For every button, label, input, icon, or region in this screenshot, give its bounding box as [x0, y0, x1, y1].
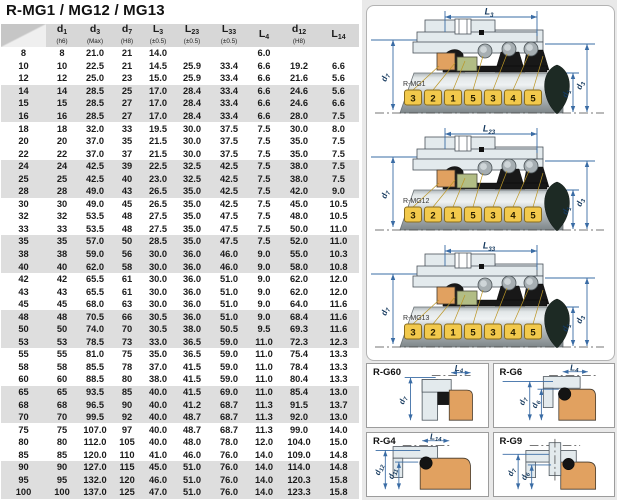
svg-text:d7: d7: [379, 71, 392, 83]
table-cell: 68.7: [210, 411, 248, 424]
table-cell: 46.0: [210, 248, 248, 261]
table-cell: 112.0: [78, 436, 112, 449]
table-cell: 7.5: [318, 160, 359, 173]
svg-text:4: 4: [510, 94, 516, 105]
table-cell: 11.0: [248, 336, 280, 349]
table-cell: 33.4: [210, 97, 248, 110]
table-cell: 23.0: [142, 172, 174, 185]
table-cell: 42.5: [210, 160, 248, 173]
table-cell: 78: [112, 361, 142, 374]
table-cell: 14.0: [248, 461, 280, 474]
table-cell: 42.5: [78, 172, 112, 185]
svg-text:3: 3: [410, 94, 415, 105]
svg-text:d7: d7: [517, 395, 530, 407]
svg-text:5: 5: [470, 211, 476, 222]
table-cell: 33.4: [210, 72, 248, 85]
part-number-tag: 5: [525, 90, 542, 105]
table-cell: 11.0: [248, 386, 280, 399]
row-label: 8: [1, 47, 46, 60]
row-label: 22: [1, 147, 46, 160]
table-cell: 78.0: [210, 436, 248, 449]
table-cell: 48.0: [280, 210, 318, 223]
table-cell: 40: [112, 172, 142, 185]
svg-text:d7: d7: [379, 188, 392, 200]
table-cell: 14.0: [318, 423, 359, 436]
table-cell: 18: [46, 122, 78, 135]
table-cell: 62.0: [280, 273, 318, 286]
table-cell: 26.5: [142, 198, 174, 211]
table-cell: 52.0: [280, 235, 318, 248]
table-row: 101022.52114.525.933.46.619.26.6: [1, 60, 359, 73]
table-cell: 6.6: [318, 60, 359, 73]
table-cell: 14.8: [318, 461, 359, 474]
column-header-d12: d12(H8): [280, 24, 318, 47]
table-row: 303049.04526.535.042.57.545.010.5: [1, 198, 359, 211]
table-cell: 47.5: [210, 210, 248, 223]
table-row: 606088.58038.041.559.011.080.413.3: [1, 373, 359, 386]
table-row: 404062.05830.036.046.09.058.010.8: [1, 260, 359, 273]
table-body: 8821.02114.06.0101022.52114.525.933.46.6…: [1, 47, 359, 499]
table-cell: 9.0: [248, 285, 280, 298]
table-cell: 72.3: [280, 336, 318, 349]
o-ring: [562, 458, 574, 470]
table-cell: 36.0: [174, 310, 210, 323]
table-row: 151528.52717.028.433.46.624.66.6: [1, 97, 359, 110]
table-cell: 10.3: [318, 248, 359, 261]
row-label: 45: [1, 298, 46, 311]
table-cell: 27.5: [142, 223, 174, 236]
svg-text:1: 1: [450, 94, 456, 105]
table-cell: 22.5: [78, 60, 112, 73]
table-cell: 50: [112, 235, 142, 248]
table-row: 8080112.010540.048.078.012.0104.015.0: [1, 436, 359, 449]
seat-box-rg4: R-G4 L14 d12 d11: [366, 432, 489, 497]
table-row: 9090127.011545.051.076.014.0114.014.8: [1, 461, 359, 474]
d3-dimension: d3: [574, 278, 589, 346]
table-cell: 32.0: [78, 122, 112, 135]
table-cell: 95: [46, 474, 78, 487]
table-cell: 17.0: [142, 110, 174, 123]
table-cell: 14.0: [248, 474, 280, 487]
table-cell: 58.0: [280, 260, 318, 273]
table-cell: 6.6: [248, 72, 280, 85]
drive-pin: [479, 147, 484, 152]
table-cell: 43: [46, 285, 78, 298]
seal-face-ring: [457, 174, 477, 188]
table-cell: 30.5: [142, 323, 174, 336]
seat-ring: [437, 53, 455, 70]
table-cell: 40.0: [142, 436, 174, 449]
table-cell: 78.5: [78, 336, 112, 349]
part-number-tag: 4: [505, 207, 522, 222]
table-cell: 68: [46, 398, 78, 411]
table-row: 555581.07535.036.559.011.075.413.3: [1, 348, 359, 361]
table-row: 686896.59040.041.268.711.391.513.7: [1, 398, 359, 411]
table-cell: 137.0: [78, 486, 112, 499]
table-row: 222237.03721.530.037.57.535.07.5: [1, 147, 359, 160]
svg-text:L4: L4: [570, 364, 579, 374]
table-cell: 28.0: [280, 110, 318, 123]
drive-pin: [479, 264, 484, 269]
table-cell: 41.0: [142, 449, 174, 462]
drive-pin: [479, 30, 484, 35]
table-row: 353557.05028.535.047.57.552.011.0: [1, 235, 359, 248]
seat-grid: R-G60 L4 d7 R-G6: [366, 363, 615, 497]
table-cell: 11.3: [248, 423, 280, 436]
row-label: 100: [1, 486, 46, 499]
table-cell: 38: [46, 248, 78, 261]
table-cell: 36.0: [174, 248, 210, 261]
table-cell: 47.5: [210, 235, 248, 248]
table-cell: 10.5: [318, 198, 359, 211]
table-cell: 88.5: [78, 373, 112, 386]
springs: [478, 42, 538, 58]
table-cell: 35.0: [174, 210, 210, 223]
table-cell: 132.0: [78, 474, 112, 487]
table-cell: 28.4: [174, 85, 210, 98]
table-cell: 30.0: [174, 147, 210, 160]
table-cell: 6.0: [248, 47, 280, 60]
table-cell: 14.8: [318, 449, 359, 462]
table-cell: 35: [46, 235, 78, 248]
part-number-tags: 3 2 1 5 3 4 5: [405, 207, 542, 222]
svg-text:5: 5: [470, 328, 476, 339]
column-header-L23: L23(±0.5): [174, 24, 210, 47]
table-cell: 7.5: [248, 210, 280, 223]
seal-cross-section-diagram: 3 2 1 5 3 4 5 R-MG12 L23: [367, 123, 612, 240]
svg-text:3: 3: [490, 328, 495, 339]
table-cell: 48: [112, 210, 142, 223]
table-cell: 42.5: [210, 185, 248, 198]
table-cell: 36.0: [174, 298, 210, 311]
table-cell: 35.0: [280, 147, 318, 160]
row-label: 33: [1, 223, 46, 236]
seal-diagram-image: 3 2 1 5 3 4 5 R-MG13 L33: [367, 240, 612, 357]
table-cell: 43: [112, 185, 142, 198]
table-cell: 21.5: [142, 135, 174, 148]
table-cell: 64.0: [280, 298, 318, 311]
table-cell: 10.5: [318, 210, 359, 223]
table-cell: 48.7: [174, 411, 210, 424]
table-cell: 93.5: [78, 386, 112, 399]
table-row: 202037.03521.530.037.57.535.07.5: [1, 135, 359, 148]
table-cell: 7.5: [248, 160, 280, 173]
table-cell: 30.0: [142, 260, 174, 273]
table-cell: 7.5: [318, 147, 359, 160]
table-cell: 55: [46, 348, 78, 361]
table-cell: 58: [46, 361, 78, 374]
table-cell: 22.5: [142, 160, 174, 173]
table-cell: 11.0: [248, 348, 280, 361]
table-cell: 5.6: [318, 85, 359, 98]
table-cell: 39: [112, 160, 142, 173]
row-label: 68: [1, 398, 46, 411]
table-cell: 59.0: [78, 248, 112, 261]
table-cell: 30.0: [280, 122, 318, 135]
d3-dimension: d3: [574, 161, 589, 229]
table-cell: 13.3: [318, 361, 359, 374]
seal-face-ring: [457, 57, 477, 71]
table-row: 656593.58540.041.569.011.085.413.0: [1, 386, 359, 399]
part-number-tag: 3: [485, 90, 502, 105]
table-cell: 20: [46, 135, 78, 148]
table-cell: 35.0: [174, 223, 210, 236]
row-label: 53: [1, 336, 46, 349]
seal-diagram-image: 3 2 1 5 3 4 5 R-MG1 L3: [367, 6, 612, 123]
table-cell: 7.5: [248, 122, 280, 135]
table-cell: 48.7: [174, 423, 210, 436]
svg-text:4: 4: [510, 211, 516, 222]
table-cell: 15.0: [318, 436, 359, 449]
table-row: 585885.57837.041.559.011.078.413.3: [1, 361, 359, 374]
table-cell: 7.5: [248, 235, 280, 248]
column-header-L33: L33(±0.5): [210, 24, 248, 47]
table-cell: 65.5: [78, 285, 112, 298]
table-cell: 12: [46, 72, 78, 85]
table-cell: 11.3: [248, 411, 280, 424]
table-cell: 15.8: [318, 486, 359, 499]
table-cell: 30: [46, 198, 78, 211]
table-cell: 127.0: [78, 461, 112, 474]
table-cell: 21.5: [142, 147, 174, 160]
svg-text:3: 3: [410, 328, 415, 339]
table-cell: 68.0: [78, 298, 112, 311]
table-cell: 40.0: [142, 423, 174, 436]
table-cell: 7.5: [248, 223, 280, 236]
table-cell: 7.5: [318, 135, 359, 148]
table-cell: 40.0: [142, 398, 174, 411]
part-number-tag: 2: [425, 324, 442, 339]
part-number-tag: 2: [425, 207, 442, 222]
row-label: 16: [1, 110, 46, 123]
table-cell: [210, 47, 248, 60]
row-label: 80: [1, 436, 46, 449]
table-cell: 9.0: [248, 248, 280, 261]
table-cell: 60: [46, 373, 78, 386]
table-cell: 13.7: [318, 398, 359, 411]
table-cell: 27: [112, 110, 142, 123]
table-cell: 36.5: [174, 336, 210, 349]
part-number-tag: 3: [405, 324, 422, 339]
row-label: 32: [1, 210, 46, 223]
part-number-tags: 3 2 1 5 3 4 5: [405, 90, 542, 105]
table-cell: 21.6: [280, 72, 318, 85]
table-cell: 85.5: [78, 361, 112, 374]
table-cell: 6.6: [248, 110, 280, 123]
table-cell: 57.0: [78, 235, 112, 248]
row-label: 35: [1, 235, 46, 248]
row-label: 90: [1, 461, 46, 474]
table-cell: 30.0: [174, 135, 210, 148]
part-number-tag: 4: [505, 324, 522, 339]
table-cell: 25.0: [78, 72, 112, 85]
mg-panel: 3 2 1 5 3 4 5 R-MG1 L3: [366, 5, 615, 361]
row-label: 43: [1, 285, 46, 298]
seat-diagram-rg9: d7 d6: [494, 433, 612, 495]
table-cell: 51.0: [174, 474, 210, 487]
part-number-tag: 3: [485, 324, 502, 339]
part-number-tag: 3: [405, 207, 422, 222]
table-cell: 69.0: [210, 386, 248, 399]
o-ring: [420, 457, 433, 470]
table-cell: 25: [112, 85, 142, 98]
seal-cross-section-diagram: 3 2 1 5 3 4 5 R-MG13 L33: [367, 240, 612, 357]
table-cell: 5.6: [318, 72, 359, 85]
diagram-model-label: R-MG12: [403, 198, 430, 205]
table-cell: 40.0: [142, 411, 174, 424]
table-cell: 37.5: [210, 147, 248, 160]
row-label: 70: [1, 411, 46, 424]
table-cell: 28.5: [78, 85, 112, 98]
table-corner-cell: [1, 24, 46, 47]
table-cell: 58: [112, 260, 142, 273]
table-cell: 23: [112, 72, 142, 85]
table-cell: 30.0: [174, 122, 210, 135]
part-number-tag: 1: [445, 324, 462, 339]
table-cell: 46.0: [142, 474, 174, 487]
table-cell: 69.3: [280, 323, 318, 336]
table-cell: 40.0: [142, 386, 174, 399]
table-cell: 42.5: [210, 172, 248, 185]
part-number-tag: 1: [445, 90, 462, 105]
table-cell: 51.0: [174, 486, 210, 499]
diagram-model-label: R-MG13: [403, 315, 430, 322]
row-label: 95: [1, 474, 46, 487]
table-cell: 36.5: [174, 348, 210, 361]
svg-text:2: 2: [430, 328, 435, 339]
table-cell: 85: [112, 386, 142, 399]
table-cell: 92: [112, 411, 142, 424]
table-cell: 33.4: [210, 85, 248, 98]
table-cell: 61: [112, 285, 142, 298]
table-cell: 13.3: [318, 373, 359, 386]
table-cell: 36.0: [174, 260, 210, 273]
seal-face-ring: [457, 291, 477, 305]
table-cell: 80.4: [280, 373, 318, 386]
table-cell: 7.5: [318, 110, 359, 123]
table-cell: 74.0: [78, 323, 112, 336]
table-cell: 78.4: [280, 361, 318, 374]
table-cell: 28.5: [78, 110, 112, 123]
table-cell: 47.0: [142, 486, 174, 499]
table-cell: [174, 47, 210, 60]
table-cell: 9.0: [248, 298, 280, 311]
table-cell: 51.0: [210, 298, 248, 311]
table-cell: 97: [112, 423, 142, 436]
table-cell: 81.0: [78, 348, 112, 361]
table-row: 484870.56630.536.051.09.068.411.6: [1, 310, 359, 323]
springs: [478, 276, 538, 292]
set-screw: [455, 19, 471, 34]
column-header-d7: d7(H8): [112, 24, 142, 47]
column-header-d1: d1(h6): [46, 24, 78, 47]
table-cell: 35: [112, 135, 142, 148]
table-cell: 68.4: [280, 310, 318, 323]
table-cell: 30.0: [142, 248, 174, 261]
table-cell: 6.6: [318, 97, 359, 110]
table-cell: 37.5: [210, 122, 248, 135]
table-cell: 28: [46, 185, 78, 198]
row-label: 15: [1, 97, 46, 110]
table-cell: 48: [46, 310, 78, 323]
row-label: 50: [1, 323, 46, 336]
row-label: 55: [1, 348, 46, 361]
table-cell: 125: [112, 486, 142, 499]
table-cell: 9.5: [248, 323, 280, 336]
table-cell: 35.0: [174, 235, 210, 248]
table-cell: 65.5: [78, 273, 112, 286]
table-cell: 80: [46, 436, 78, 449]
table-cell: 48.0: [174, 436, 210, 449]
table-row: 333353.54827.535.047.57.550.011.0: [1, 223, 359, 236]
table-row: 8585120.011041.046.076.014.0109.014.8: [1, 449, 359, 462]
table-cell: 14.0: [142, 47, 174, 60]
table-cell: 33: [46, 223, 78, 236]
table-cell: 8.0: [318, 122, 359, 135]
table-cell: 50.5: [210, 323, 248, 336]
table-cell: 49.0: [78, 198, 112, 211]
table-cell: 36.0: [174, 285, 210, 298]
table-cell: 37: [112, 147, 142, 160]
table-cell: 104.0: [280, 436, 318, 449]
table-cell: 7.5: [248, 147, 280, 160]
svg-text:3: 3: [490, 94, 495, 105]
seat-ring: [437, 170, 455, 187]
table-cell: 24.6: [280, 97, 318, 110]
row-label: 40: [1, 260, 46, 273]
table-cell: 37.5: [210, 135, 248, 148]
table-cell: 15: [46, 97, 78, 110]
row-label: 38: [1, 248, 46, 261]
table-cell: 28.4: [174, 110, 210, 123]
table-cell: 12.0: [248, 436, 280, 449]
svg-text:d7: d7: [397, 394, 410, 406]
table-row: 100100137.012547.051.076.014.0123.315.8: [1, 486, 359, 499]
table-cell: 24: [46, 160, 78, 173]
table-cell: 41.2: [174, 398, 210, 411]
table-cell: 7.5: [248, 198, 280, 211]
d3-dimension: d3: [574, 44, 589, 112]
table-cell: 114.0: [280, 461, 318, 474]
table-cell: 51.0: [210, 310, 248, 323]
table-cell: 19.5: [142, 122, 174, 135]
part-number-tag: 5: [465, 207, 482, 222]
table-cell: 76.0: [210, 461, 248, 474]
table-cell: 38.0: [280, 160, 318, 173]
o-ring: [558, 388, 571, 401]
table-row: 8821.02114.06.0: [1, 47, 359, 60]
table-cell: 37.0: [78, 135, 112, 148]
table-cell: 76.0: [210, 449, 248, 462]
table-cell: 26.5: [142, 185, 174, 198]
table-cell: 25: [46, 172, 78, 185]
svg-text:3: 3: [410, 211, 415, 222]
table-cell: 16: [46, 110, 78, 123]
table-cell: [318, 47, 359, 60]
table-cell: 42: [46, 273, 78, 286]
part-number-tag: 2: [425, 90, 442, 105]
table-cell: 9.0: [318, 185, 359, 198]
svg-text:L14: L14: [430, 433, 442, 443]
svg-text:d12: d12: [373, 462, 387, 477]
table-cell: 73: [112, 336, 142, 349]
page-title: R-MG1 / MG12 / MG13: [6, 2, 165, 19]
table-cell: 80: [112, 373, 142, 386]
table-cell: 63: [112, 298, 142, 311]
table-cell: 35.0: [174, 185, 210, 198]
table-row: 7575107.09740.048.768.711.399.014.0: [1, 423, 359, 436]
table-cell: 76.0: [210, 486, 248, 499]
